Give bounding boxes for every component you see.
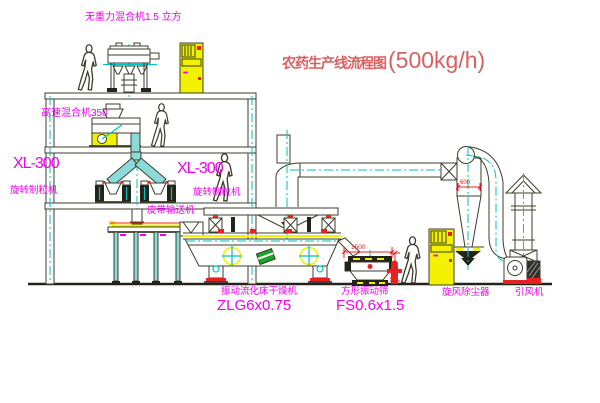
cabinet-b-marking: •••	[433, 253, 437, 260]
induced-draft-fan	[503, 257, 541, 284]
person-figure	[402, 237, 420, 283]
granulator-left	[95, 181, 131, 202]
title-capacity: (500kg/h)	[388, 47, 485, 74]
gravity-mixer-machine	[103, 43, 159, 97]
cyclone-body-dimension: 600	[460, 180, 470, 186]
screen-name-label: 方形振动筛	[341, 287, 389, 297]
gravity-mixer-label: 无重力混合机1.5 立方	[85, 13, 182, 23]
screen-model-label: FS0.6x1.5	[336, 298, 404, 313]
diagram-title: 农药生产线流程图 (500kg/h)	[282, 47, 485, 74]
screen-length-dimension: 1500	[351, 245, 365, 252]
flow-diagram-canvas: 农药生产线流程图 (500kg/h) 无重力混合机1.5 立方 高速混合机350…	[0, 0, 600, 403]
dryer-model-label: ZLG6x0.75	[217, 298, 291, 313]
granulator-right-model-label: XL-300	[177, 161, 223, 177]
dryer-name-label: 振动流化床干燥机	[221, 287, 297, 297]
granulator-left-model-label: XL-300	[13, 156, 59, 172]
granulator-right-name-label: 旋转制粒机	[193, 188, 241, 198]
belt-conveyor-machine	[108, 209, 194, 284]
control-cabinet-a	[180, 43, 203, 93]
title-text: 农药生产线流程图	[282, 47, 386, 73]
cabinet-a-marking: •••	[183, 70, 187, 77]
granulator-right	[140, 181, 176, 202]
cyclone-label: 旋风除尘器	[442, 288, 490, 298]
high-speed-mixer-label: 高速混合机350	[41, 109, 108, 119]
screen-height-dimension: 540	[391, 269, 398, 280]
person-figure	[152, 104, 169, 146]
person-figure	[78, 45, 96, 90]
granulator-left-name-label: 旋转制粒机	[10, 186, 58, 196]
fan-label: 引风机	[515, 288, 544, 298]
belt-conveyor-label: 皮带输送机	[147, 206, 195, 216]
